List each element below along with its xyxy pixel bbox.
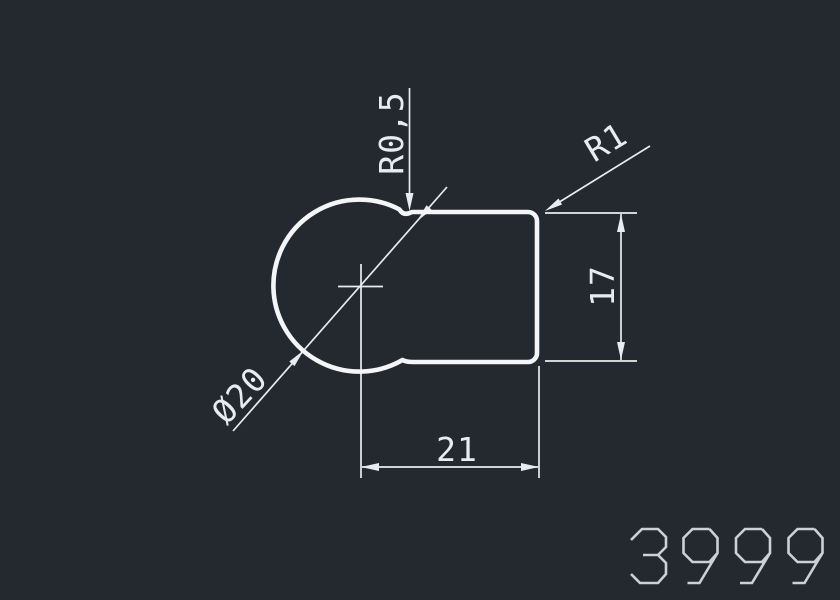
viewport-background [0, 0, 840, 600]
height-label: 17 [583, 265, 622, 307]
cad-drawing-area: R0,5 R1 17 21 Ø20 [0, 0, 840, 600]
fillet-top-label: R0,5 [372, 91, 411, 174]
width-label: 21 [436, 430, 478, 469]
cad-viewport: R0,5 R1 17 21 Ø20 [0, 0, 840, 600]
